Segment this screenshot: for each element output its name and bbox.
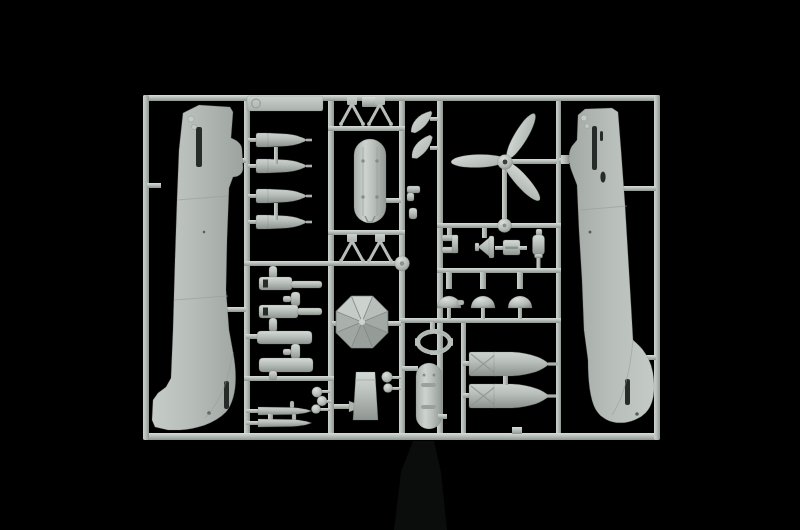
runner-tab: [512, 427, 522, 434]
sprue-photo-canvas: [0, 0, 800, 530]
canopy-slot: [196, 127, 202, 167]
sprue-label-plate: [247, 96, 323, 111]
canopy-slot: [592, 126, 597, 170]
photo-model-kit-sprue: [0, 0, 800, 530]
drop-tank-large-part: [354, 139, 386, 223]
faceted-dome-part: [336, 296, 388, 348]
fuselage-hole: [600, 171, 605, 182]
runner-tab: [561, 155, 569, 164]
